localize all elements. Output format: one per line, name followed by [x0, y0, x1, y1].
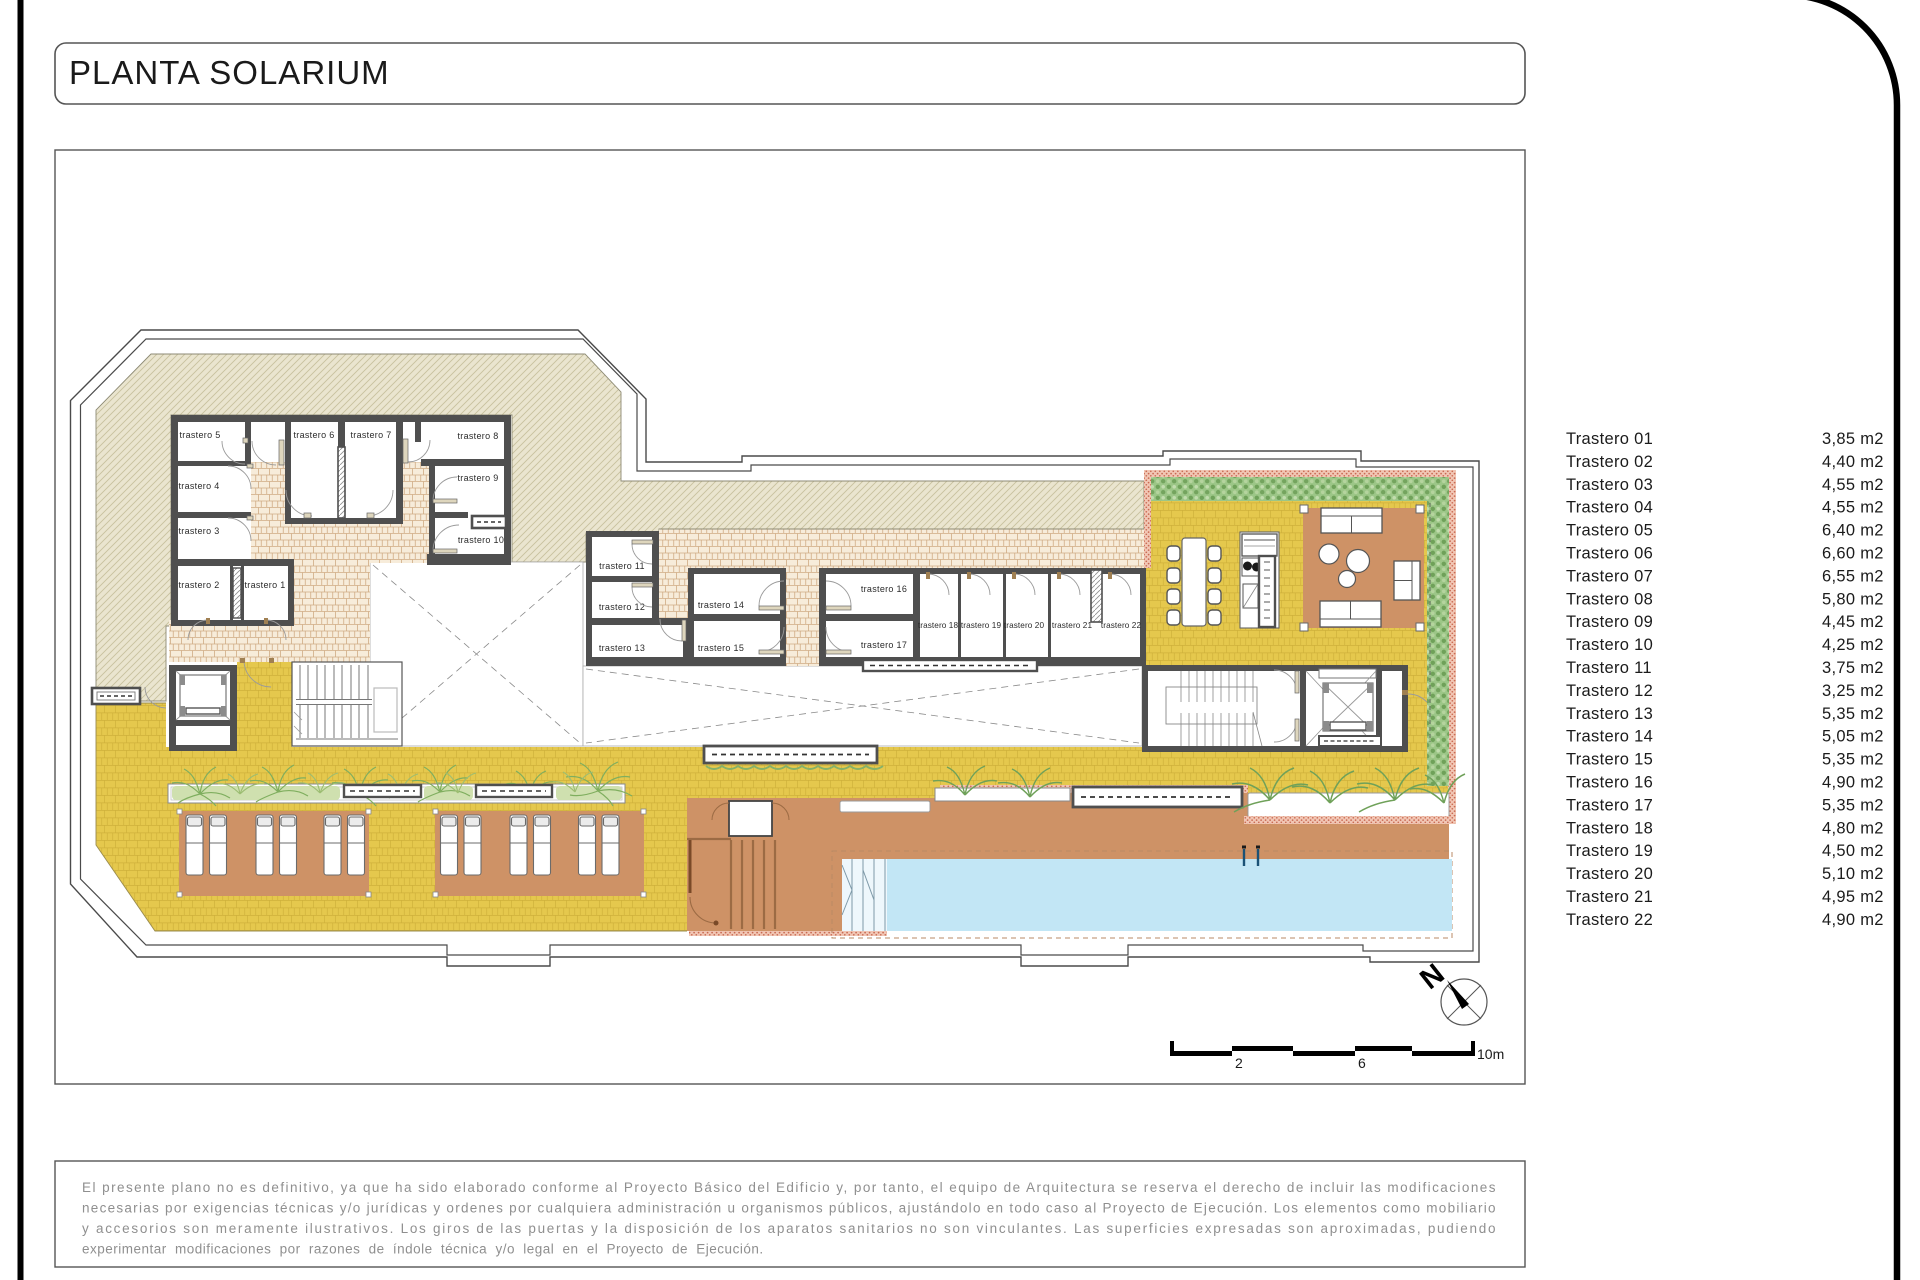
svg-text:trastero 8: trastero 8 [457, 431, 498, 441]
svg-text:trastero 5: trastero 5 [179, 430, 220, 440]
svg-text:Trastero 06: Trastero 06 [1566, 545, 1653, 563]
svg-text:6,60 m2: 6,60 m2 [1822, 545, 1884, 563]
svg-text:4,45 m2: 4,45 m2 [1822, 613, 1884, 631]
svg-text:Trastero 04: Trastero 04 [1566, 499, 1653, 517]
svg-text:Trastero 12: Trastero 12 [1566, 682, 1653, 700]
svg-text:Trastero 09: Trastero 09 [1566, 613, 1653, 631]
svg-text:4,55 m2: 4,55 m2 [1822, 499, 1884, 517]
svg-text:trastero 14: trastero 14 [698, 600, 744, 610]
svg-text:6,40 m2: 6,40 m2 [1822, 522, 1884, 540]
svg-text:Trastero 01: Trastero 01 [1566, 430, 1653, 448]
svg-text:necesarias por exigencias técn: necesarias por exigencias técnicas y/o j… [82, 1201, 1496, 1216]
svg-text:5,05 m2: 5,05 m2 [1822, 728, 1884, 746]
svg-text:6,55 m2: 6,55 m2 [1822, 567, 1884, 585]
svg-text:Trastero 05: Trastero 05 [1566, 522, 1653, 540]
svg-text:Trastero 15: Trastero 15 [1566, 751, 1653, 769]
svg-text:trastero 12: trastero 12 [599, 602, 645, 612]
svg-text:trastero 1: trastero 1 [244, 580, 285, 590]
svg-text:trastero 20: trastero 20 [1004, 621, 1045, 630]
svg-text:trastero 15: trastero 15 [698, 643, 744, 653]
svg-text:trastero 11: trastero 11 [599, 561, 645, 571]
svg-text:Trastero 07: Trastero 07 [1566, 567, 1653, 585]
svg-text:Trastero 02: Trastero 02 [1566, 453, 1653, 471]
svg-text:5,35 m2: 5,35 m2 [1822, 751, 1884, 769]
svg-text:trastero 13: trastero 13 [599, 643, 645, 653]
svg-text:trastero 3: trastero 3 [178, 526, 219, 536]
svg-text:Trastero 20: Trastero 20 [1566, 865, 1653, 883]
svg-text:Trastero 22: Trastero 22 [1566, 911, 1653, 929]
svg-text:4,95 m2: 4,95 m2 [1822, 888, 1884, 906]
svg-text:El presente plano no es defini: El presente plano no es definitivo, ya q… [82, 1180, 1496, 1195]
svg-text:Trastero 13: Trastero 13 [1566, 705, 1653, 723]
svg-text:3,25 m2: 3,25 m2 [1822, 682, 1884, 700]
svg-text:Trastero 03: Trastero 03 [1566, 476, 1653, 494]
svg-text:trastero 2: trastero 2 [178, 580, 219, 590]
svg-text:Trastero 10: Trastero 10 [1566, 636, 1653, 654]
svg-text:Trastero 16: Trastero 16 [1566, 774, 1653, 792]
svg-text:Trastero 08: Trastero 08 [1566, 590, 1653, 608]
svg-text:5,80 m2: 5,80 m2 [1822, 590, 1884, 608]
svg-text:4,50 m2: 4,50 m2 [1822, 842, 1884, 860]
svg-text:4,55 m2: 4,55 m2 [1822, 476, 1884, 494]
svg-text:10m: 10m [1477, 1046, 1504, 1062]
svg-text:PLANTA SOLARIUM: PLANTA SOLARIUM [69, 54, 390, 91]
svg-text:trastero 10: trastero 10 [458, 535, 504, 545]
svg-text:Trastero 14: Trastero 14 [1566, 728, 1653, 746]
svg-text:4,90 m2: 4,90 m2 [1822, 774, 1884, 792]
svg-text:trastero 6: trastero 6 [293, 430, 334, 440]
svg-text:4,80 m2: 4,80 m2 [1822, 819, 1884, 837]
svg-text:4,25 m2: 4,25 m2 [1822, 636, 1884, 654]
svg-text:Trastero 19: Trastero 19 [1566, 842, 1653, 860]
svg-text:trastero 16: trastero 16 [861, 584, 907, 594]
svg-text:trastero 9: trastero 9 [457, 473, 498, 483]
svg-text:6: 6 [1358, 1055, 1366, 1071]
svg-text:4,40 m2: 4,40 m2 [1822, 453, 1884, 471]
svg-text:3,85 m2: 3,85 m2 [1822, 430, 1884, 448]
svg-text:trastero 22: trastero 22 [1101, 621, 1142, 630]
svg-text:trastero 21: trastero 21 [1052, 621, 1093, 630]
svg-text:trastero 17: trastero 17 [861, 640, 907, 650]
svg-text:5,35 m2: 5,35 m2 [1822, 796, 1884, 814]
svg-text:trastero 19: trastero 19 [961, 621, 1002, 630]
svg-text:3,75 m2: 3,75 m2 [1822, 659, 1884, 677]
svg-text:experimentar modificaciones po: experimentar modificaciones por razones … [82, 1242, 764, 1257]
svg-text:y accesorios son meramente ilu: y accesorios son meramente ilustrativos.… [82, 1221, 1496, 1236]
svg-text:trastero 18: trastero 18 [918, 621, 959, 630]
svg-text:trastero 7: trastero 7 [350, 430, 391, 440]
svg-text:Trastero 18: Trastero 18 [1566, 819, 1653, 837]
svg-text:trastero 4: trastero 4 [178, 481, 219, 491]
svg-text:5,35 m2: 5,35 m2 [1822, 705, 1884, 723]
svg-text:Trastero 21: Trastero 21 [1566, 888, 1653, 906]
svg-text:2: 2 [1235, 1055, 1243, 1071]
svg-text:Trastero 17: Trastero 17 [1566, 796, 1653, 814]
svg-text:5,10 m2: 5,10 m2 [1822, 865, 1884, 883]
svg-text:Trastero 11: Trastero 11 [1566, 659, 1652, 677]
svg-text:4,90 m2: 4,90 m2 [1822, 911, 1884, 929]
